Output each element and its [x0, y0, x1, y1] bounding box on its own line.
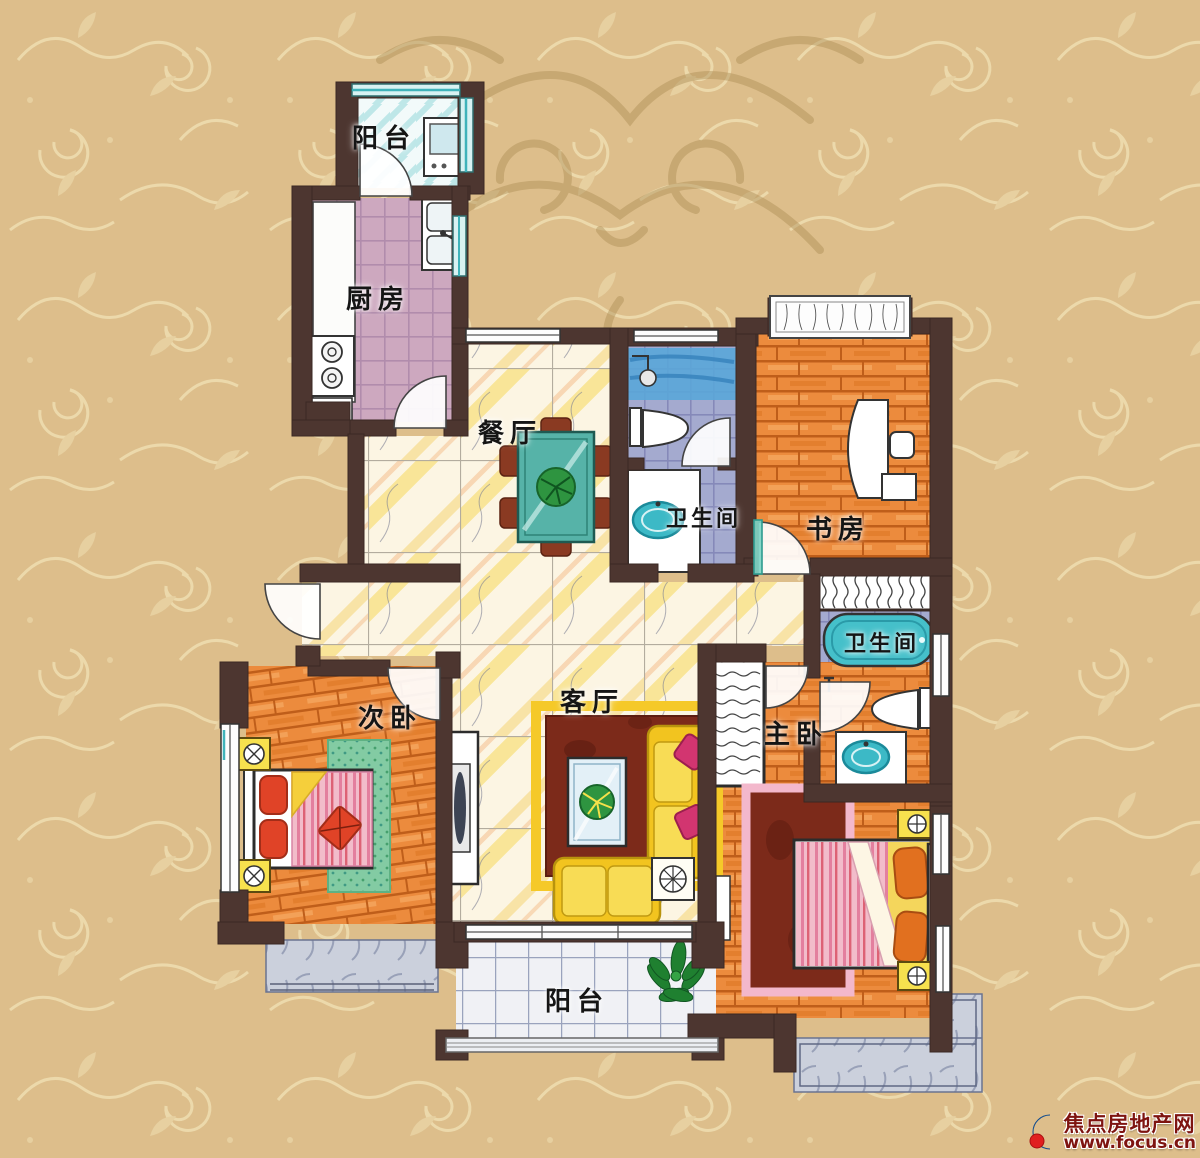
bathroom1-window: [634, 330, 718, 342]
study-bay-window: [770, 296, 910, 338]
bathroom2-sink: [836, 732, 906, 786]
study-door-leaf: [754, 520, 762, 574]
dining-window: [466, 329, 560, 342]
wardrobe-hangers: [712, 652, 764, 786]
room-label-bathroom-1: 卫生间: [666, 501, 741, 533]
floor-plan-page: 阳台 厨房 餐厅 卫生间 书房 卫生间 客厅 次卧 主卧 阳台 焦点房地产网 w…: [0, 0, 1200, 1158]
room-label-kitchen: 厨房: [346, 279, 410, 316]
watermark-text: 焦点房地产网 www.focus.cn: [1064, 1113, 1197, 1153]
room-label-dining: 餐厅: [478, 413, 542, 450]
balcony-rail: [446, 1038, 718, 1052]
room-label-bathroom-2: 卫生间: [844, 626, 919, 658]
bathroom2-window: [933, 634, 949, 696]
room-label-master-bedroom: 主卧: [764, 714, 828, 751]
corner-side-table: [652, 858, 694, 900]
room-label-second-bedroom: 次卧: [358, 698, 422, 735]
room-label-balcony-bottom: 阳台: [545, 981, 609, 1018]
stove-icon: [310, 336, 354, 396]
room-label-study: 书房: [806, 509, 870, 546]
second-bed: [244, 770, 372, 868]
watermark-site-name: 焦点房地产网: [1064, 1113, 1197, 1135]
kitchen-window: [453, 216, 466, 276]
entry-door: [265, 584, 320, 639]
room-label-balcony-top: 阳台: [352, 118, 416, 155]
second-bedroom-window: [221, 724, 239, 892]
bay-platform-left: [266, 940, 438, 992]
master-bed: [794, 840, 940, 968]
watermark: 焦点房地产网 www.focus.cn: [1020, 1112, 1197, 1154]
focus-logo-icon: [1020, 1112, 1060, 1154]
room-label-living: 客厅: [560, 682, 624, 719]
shower-area: [628, 348, 736, 400]
watermark-site-url: www.focus.cn: [1064, 1135, 1197, 1153]
coffee-table: [568, 758, 626, 846]
living-balcony-windows: [466, 925, 692, 939]
